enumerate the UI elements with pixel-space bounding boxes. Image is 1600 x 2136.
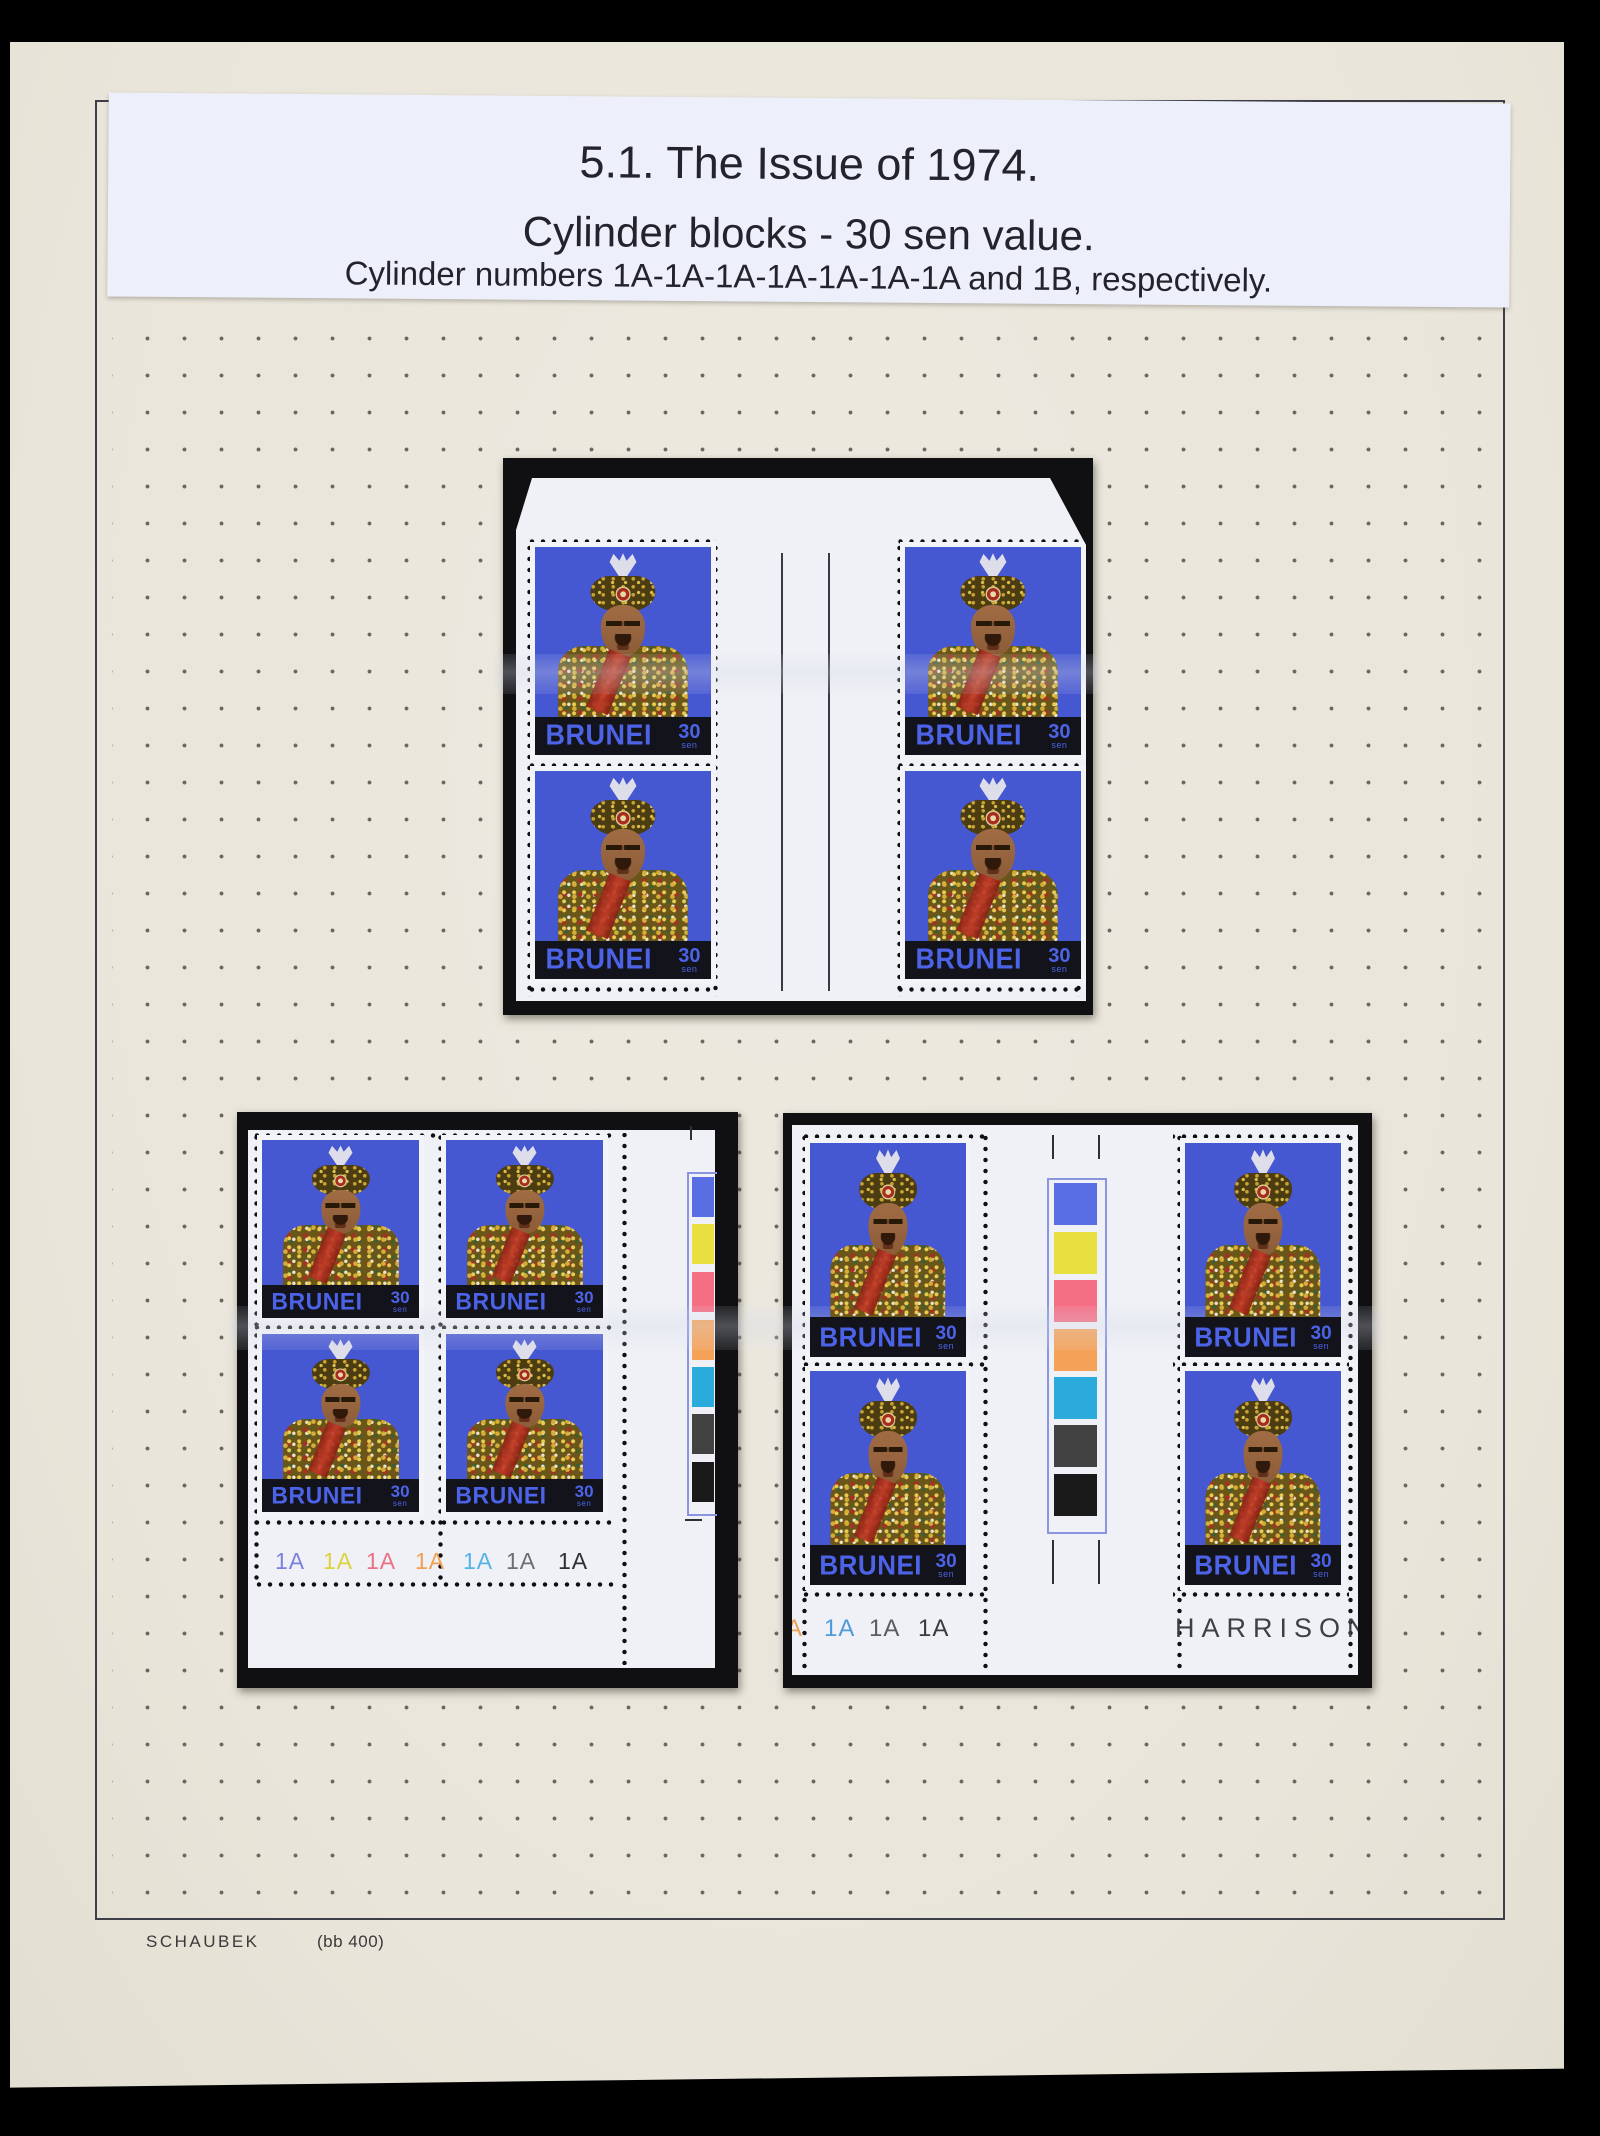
value-number: 30 [575,1290,594,1305]
value-number: 30 [678,947,700,965]
cylinder-number: 1A [323,1548,353,1575]
color-dab-orange [692,1320,714,1360]
stamp: BRUNEI30sen [1180,1138,1346,1362]
stamp: BRUNEI30sen [441,1135,608,1323]
stamp: BRUNEI30sen [900,542,1086,760]
value-unit: sen [577,1500,591,1507]
country-label: BRUNEI [271,1287,362,1315]
page-code-label: (bb 400) [317,1932,384,1952]
stamp: BRUNEI30sen [1180,1366,1346,1590]
value-number: 30 [575,1484,594,1499]
perforation-column [983,1134,988,1670]
color-dab-yellow [692,1224,714,1264]
perforation-row [894,987,1083,992]
value-number: 30 [1048,947,1070,965]
cylinder-number: 1A [869,1615,900,1643]
caption-band: BRUNEI30sen [810,1317,966,1357]
stamp-image: BRUNEI30sen [905,547,1081,755]
registration-mark [1098,1135,1100,1159]
value-number: 30 [391,1290,410,1305]
value-label: 30sen [391,1290,410,1312]
country-label: BRUNEI [455,1481,546,1509]
stamp: BRUNEI30sen [805,1366,971,1590]
caption-band: BRUNEI30sen [262,1479,419,1512]
sultan-face [869,1431,908,1485]
country-label: BRUNEI [1194,1321,1297,1354]
value-unit: sen [1051,965,1067,973]
country-label: BRUNEI [546,943,653,976]
color-dab-black [692,1462,714,1502]
caption-band: BRUNEI30sen [262,1285,419,1318]
stamp-image: BRUNEI30sen [535,547,711,755]
value-label: 30sen [936,1553,957,1578]
gutter-block-bottom-right: BRUNEI30sen BRUNEI30sen BRUNEI30sen BRUN… [783,1113,1372,1688]
cylinder-number: 1A [463,1548,493,1575]
country-label: BRUNEI [916,719,1023,752]
value-number: 30 [391,1484,410,1499]
caption-band: BRUNEI30sen [905,941,1081,979]
cylinder-number: A [792,1615,803,1643]
cylinder-number: 1A [918,1615,949,1643]
value-unit: sen [681,741,697,749]
value-label: 30sen [391,1484,410,1506]
value-label: 30sen [678,723,700,749]
page-title: 5.1. The Issue of 1974. [108,132,1510,195]
cylinder-number: 1A [275,1548,305,1575]
value-number: 30 [678,723,700,741]
gutter-line [781,553,783,991]
color-dab-black [1054,1474,1097,1516]
color-dab-blue [1054,1183,1097,1225]
country-label: BRUNEI [916,943,1023,976]
stamp-image: BRUNEI30sen [446,1140,603,1318]
color-dab-pink [692,1272,714,1312]
cylinder-number: 1A [415,1548,445,1575]
country-label: BRUNEI [271,1481,362,1509]
color-dab-gray [1054,1425,1097,1467]
perforation-column [622,1133,627,1665]
registration-mark [1052,1540,1054,1584]
caption-band: BRUNEI30sen [1185,1317,1341,1357]
sultan-face [1244,1431,1283,1485]
perforation-row [1173,1592,1349,1597]
sultan-face [869,1203,908,1257]
perforation-row [251,1582,619,1587]
stamp-image: BRUNEI30sen [1185,1371,1341,1585]
stamp-image: BRUNEI30sen [810,1371,966,1585]
stamp: BRUNEI30sen [900,766,1086,984]
country-label: BRUNEI [819,1321,922,1354]
registration-mark [685,1519,702,1521]
value-label: 30sen [1311,1553,1332,1578]
stamp: BRUNEI30sen [257,1135,424,1323]
color-dab-cyan [692,1367,714,1407]
value-unit: sen [577,1306,591,1313]
registration-mark [1098,1540,1100,1584]
caption-band: BRUNEI30sen [535,941,711,979]
color-dab-orange [1054,1329,1097,1371]
perforation-row [524,987,716,992]
value-label: 30sen [575,1484,594,1506]
country-label: BRUNEI [1194,1549,1297,1582]
perforation-row [800,1592,988,1597]
value-label: 30sen [936,1325,957,1350]
header-label: 5.1. The Issue of 1974. Cylinder blocks … [107,92,1511,307]
value-unit: sen [938,1570,954,1578]
stamp: BRUNEI30sen [257,1329,424,1517]
value-unit: sen [938,1342,954,1350]
value-label: 30sen [1048,723,1070,749]
value-unit: sen [1051,741,1067,749]
caption-band: BRUNEI30sen [905,717,1081,755]
value-number: 30 [1311,1325,1332,1342]
value-label: 30sen [1048,947,1070,973]
stamp-image: BRUNEI30sen [810,1143,966,1357]
color-dab-pink [1054,1280,1097,1322]
value-label: 30sen [575,1290,594,1312]
stamp-image: BRUNEI30sen [1185,1143,1341,1357]
color-dab-cyan [1054,1377,1097,1419]
country-label: BRUNEI [455,1287,546,1315]
stamp: BRUNEI30sen [441,1329,608,1517]
country-label: BRUNEI [546,719,653,752]
caption-band: BRUNEI30sen [446,1285,603,1318]
country-label: BRUNEI [819,1549,922,1582]
caption-band: BRUNEI30sen [535,717,711,755]
value-label: 30sen [1311,1325,1332,1350]
value-label: 30sen [678,947,700,973]
caption-band: BRUNEI30sen [446,1479,603,1512]
stamp-image: BRUNEI30sen [905,771,1081,979]
stamp-image: BRUNEI30sen [535,771,711,979]
album-page-photo: 5.1. The Issue of 1974. Cylinder blocks … [0,0,1600,2136]
value-number: 30 [1311,1553,1332,1570]
value-number: 30 [936,1325,957,1342]
cylinder-number: 1A [558,1548,588,1575]
gutter-block-top: BRUNEI30sen BRUNEI30sen BRUNEI30sen BRUN… [503,458,1093,1015]
stamp: BRUNEI30sen [805,1138,971,1362]
stamp-sheet: BRUNEI30sen BRUNEI30sen BRUNEI30sen BRUN… [792,1125,1358,1675]
publisher-label: SCHAUBEK [146,1932,260,1952]
color-dab-blue [692,1177,714,1217]
value-number: 30 [936,1553,957,1570]
stamp: BRUNEI30sen [530,766,716,984]
gutter-line [828,553,830,991]
value-unit: sen [1313,1570,1329,1578]
stamp-sheet: BRUNEI30sen BRUNEI30sen BRUNEI30sen BRUN… [516,478,1086,1001]
value-unit: sen [1313,1342,1329,1350]
stamp-image: BRUNEI30sen [262,1334,419,1512]
cylinder-number: 1A [824,1615,855,1643]
value-unit: sen [393,1306,407,1313]
registration-mark [1052,1135,1054,1159]
printer-name: HARRISON [1175,1613,1351,1644]
cylinder-block-bottom-left: BRUNEI30sen BRUNEI30sen BRUNEI30sen BRUN… [237,1112,738,1688]
sultan-face [1244,1203,1283,1257]
caption-band: BRUNEI30sen [810,1545,966,1585]
value-number: 30 [1048,723,1070,741]
registration-mark [690,1126,692,1140]
cylinder-number: 1A [366,1548,396,1575]
color-dab-yellow [1054,1232,1097,1274]
perforation-row [251,1520,615,1525]
value-unit: sen [393,1500,407,1507]
stamp: BRUNEI30sen [530,542,716,760]
color-dab-gray [692,1414,714,1454]
stamp-sheet: BRUNEI30sen BRUNEI30sen BRUNEI30sen BRUN… [248,1130,715,1668]
caption-band: BRUNEI30sen [1185,1545,1341,1585]
perforation-column [1348,1134,1353,1670]
stamp-image: BRUNEI30sen [262,1140,419,1318]
stamp-image: BRUNEI30sen [446,1334,603,1512]
cylinder-number: 1A [506,1548,536,1575]
value-unit: sen [681,965,697,973]
